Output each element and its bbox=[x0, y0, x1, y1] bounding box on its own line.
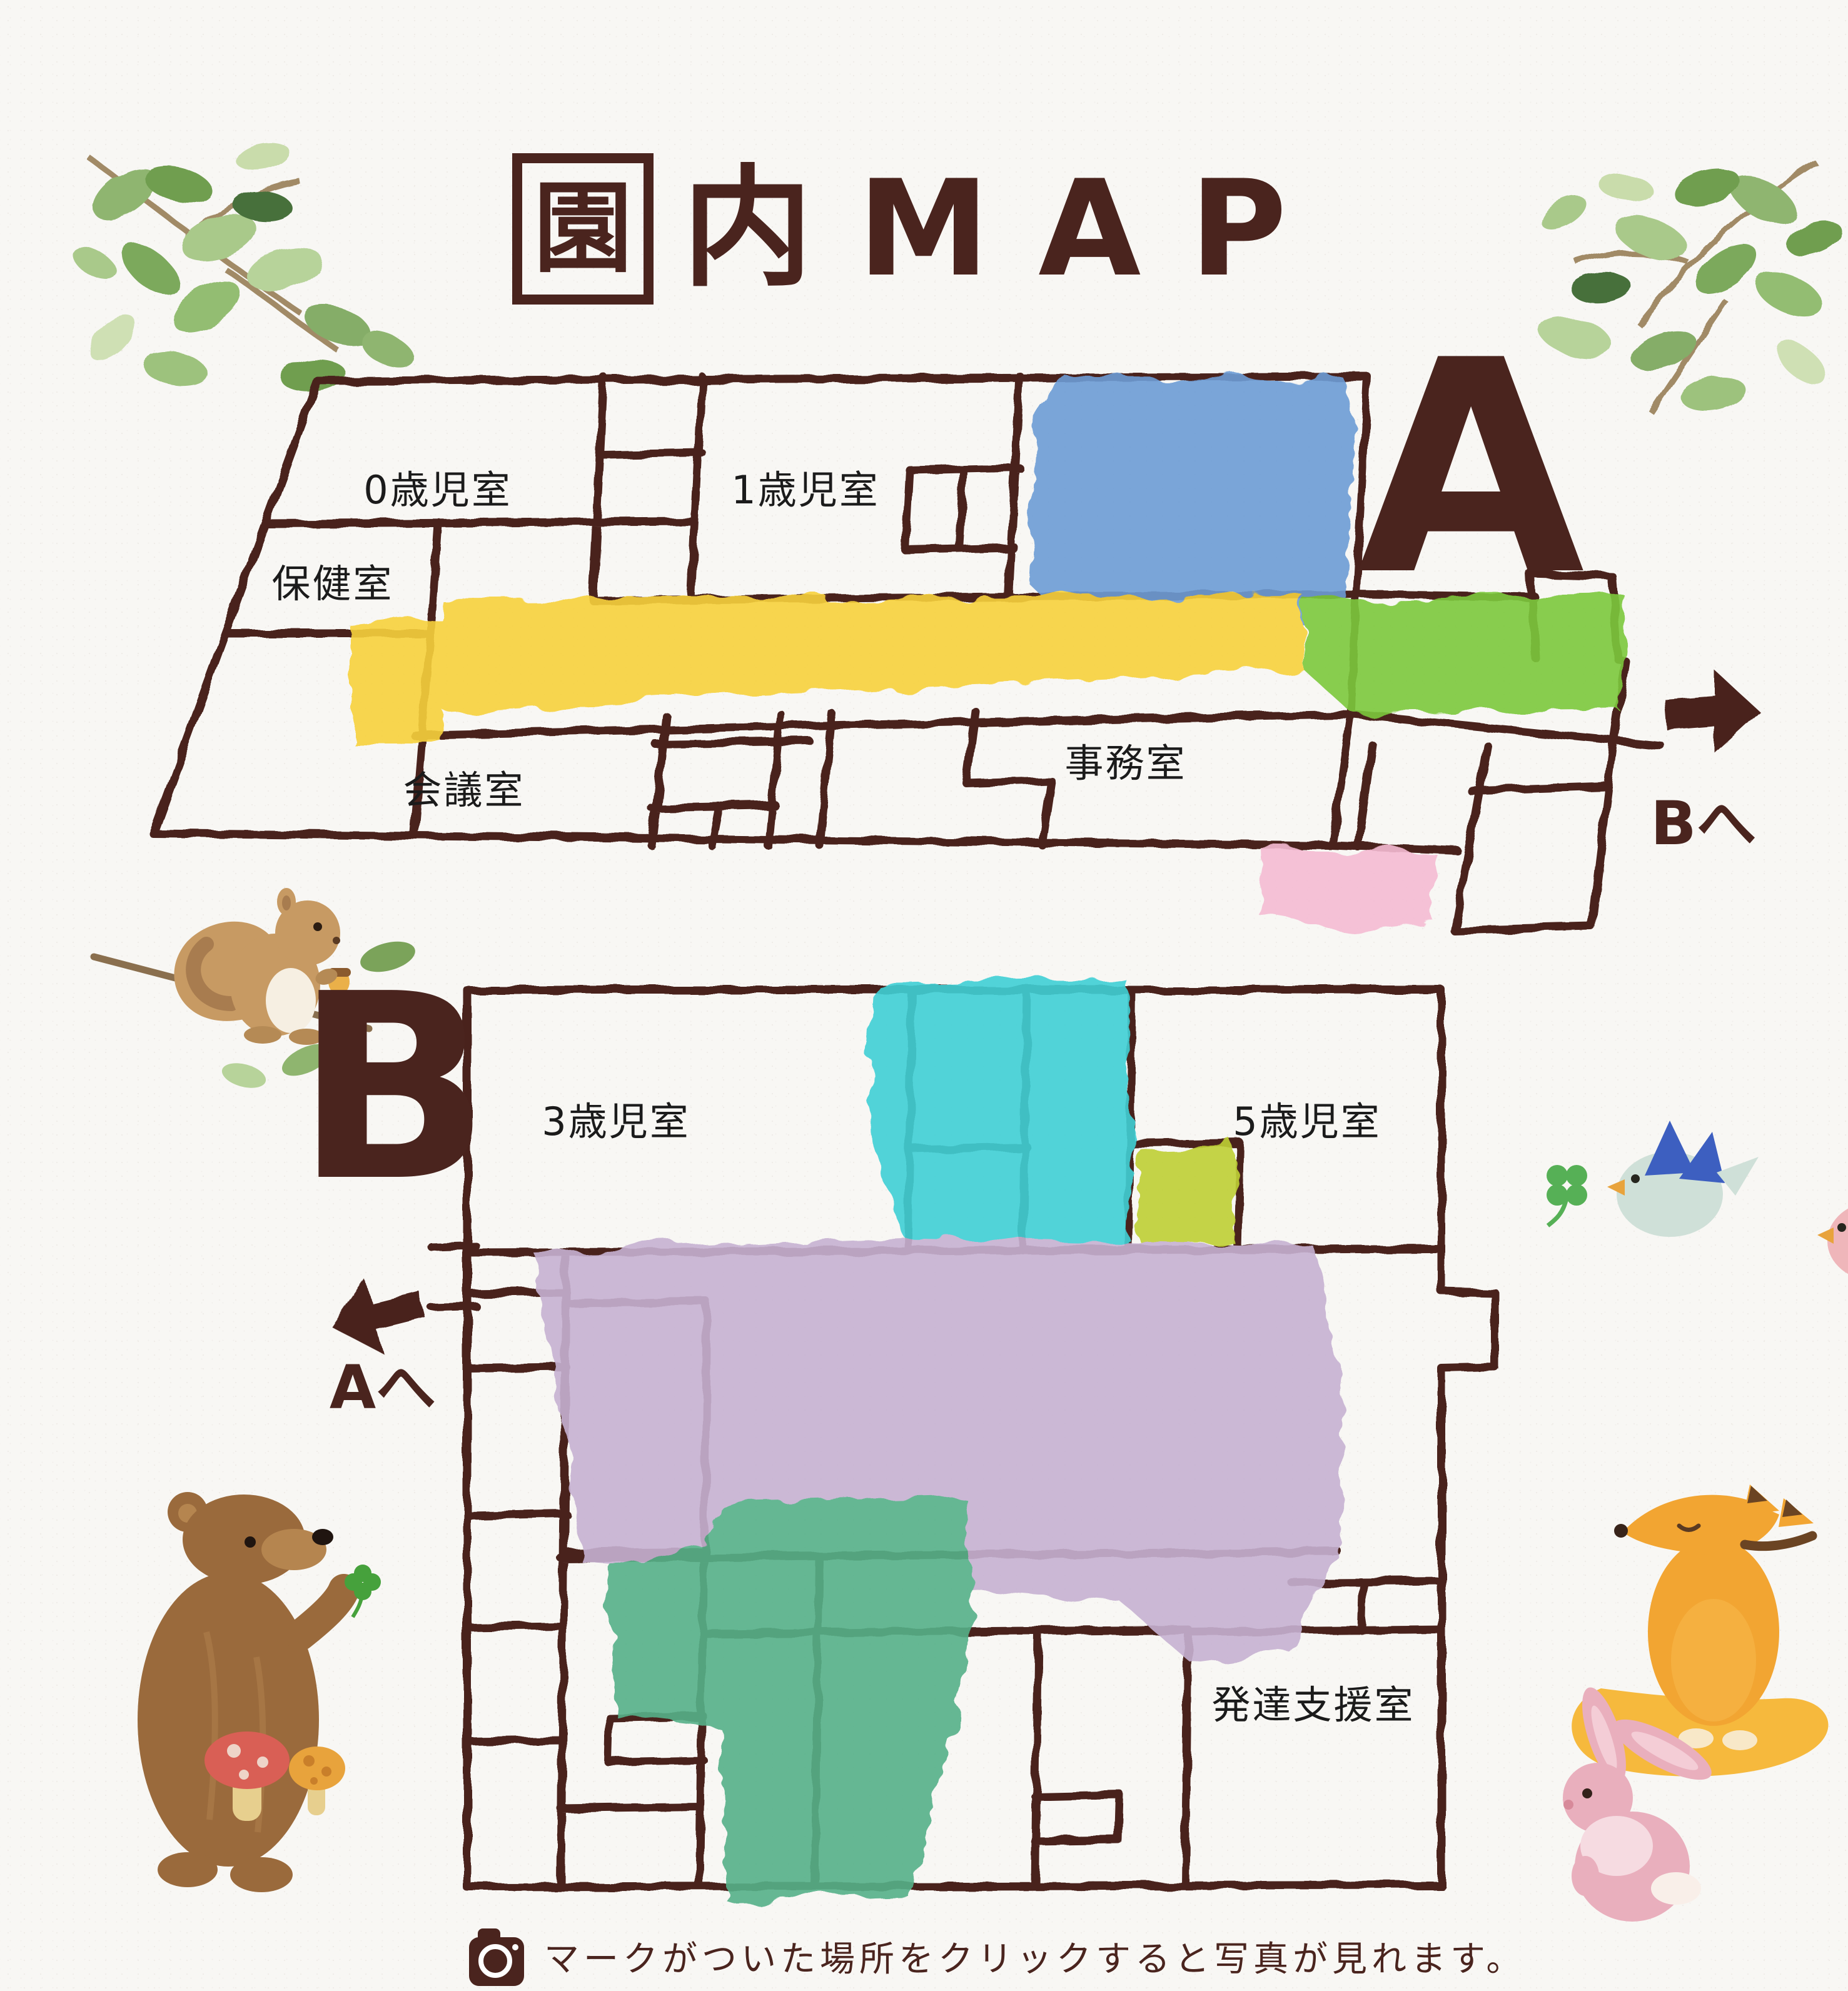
arrow-left-icon[interactable] bbox=[322, 1267, 432, 1365]
room-label-jimushitsu: 事務室 bbox=[1064, 740, 1186, 786]
room-label-5saiji: 5歳児室 bbox=[1233, 1099, 1381, 1144]
map-a: 0歳児室 1歳児室 保健室 会議室 事務室 A Bへ bbox=[153, 298, 1760, 933]
camera-icon bbox=[468, 1925, 528, 1987]
room-label-kaigishitsu: 会議室 bbox=[403, 767, 525, 813]
map-canvas: 0歳児室 1歳児室 保健室 会議室 事務室 A Bへ bbox=[0, 0, 1848, 1991]
arrow-right-icon[interactable] bbox=[1665, 670, 1760, 753]
highlight-blue-region[interactable] bbox=[1027, 376, 1355, 629]
section-letter-b: B bbox=[295, 939, 491, 1237]
clover-icon bbox=[1547, 1165, 1587, 1226]
birds-illustration bbox=[1547, 1121, 1848, 1281]
red-bird bbox=[1817, 1174, 1848, 1281]
map-b: 3歳児室 5歳児室 発達支援室 B Aへ bbox=[295, 939, 1495, 1901]
leaves-branch-top-left-illustration bbox=[66, 138, 420, 395]
bear-illustration bbox=[138, 1492, 381, 1892]
caption: マークがついた場所をクリックすると写真が見れます。 bbox=[468, 1925, 1525, 1987]
kindergarten-map-page: 園 内 MAP bbox=[0, 0, 1848, 1991]
highlight-pink-region[interactable] bbox=[1261, 848, 1436, 933]
nav-to-b[interactable]: Bへ bbox=[1650, 670, 1760, 859]
room-label-0saiji: 0歳児室 bbox=[363, 467, 512, 513]
nav-to-a-label[interactable]: Aへ bbox=[330, 1353, 436, 1423]
highlight-cyan-region[interactable] bbox=[867, 979, 1133, 1271]
nav-to-b-label[interactable]: Bへ bbox=[1650, 789, 1756, 859]
caption-text: マークがついた場所をクリックすると写真が見れます。 bbox=[544, 1931, 1525, 1982]
highlight-jade-region[interactable] bbox=[610, 1496, 973, 1901]
room-label-1saiji: 1歳児室 bbox=[731, 467, 879, 513]
room-label-3saiji: 3歳児室 bbox=[542, 1099, 690, 1144]
highlight-lime-region[interactable] bbox=[1138, 1144, 1236, 1243]
room-label-hokenshitsu: 保健室 bbox=[271, 561, 393, 607]
section-letter-a: A bbox=[1357, 298, 1587, 640]
room-label-hattatsu-shien: 発達支援室 bbox=[1211, 1682, 1415, 1728]
nav-to-a[interactable]: Aへ bbox=[322, 1267, 436, 1423]
blue-bird bbox=[1607, 1121, 1759, 1237]
